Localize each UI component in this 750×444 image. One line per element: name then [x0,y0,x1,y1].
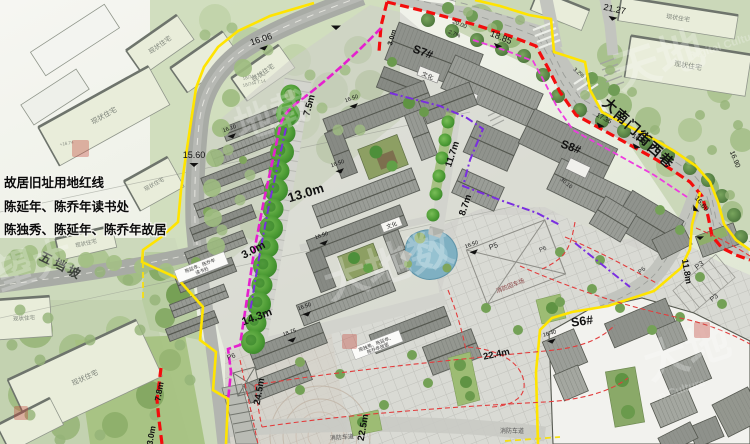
svg-text:陈独秀、陈延年、陈乔年故居: 陈独秀、陈延年、陈乔年故居 [4,222,167,237]
svg-text:陈延年、陈乔年读书处: 陈延年、陈乔年读书处 [4,199,130,214]
svg-text:故居旧址用地红线: 故居旧址用地红线 [4,175,105,190]
svg-text:消防车道: 消防车道 [500,427,524,435]
svg-text:15.60: 15.60 [183,150,206,160]
